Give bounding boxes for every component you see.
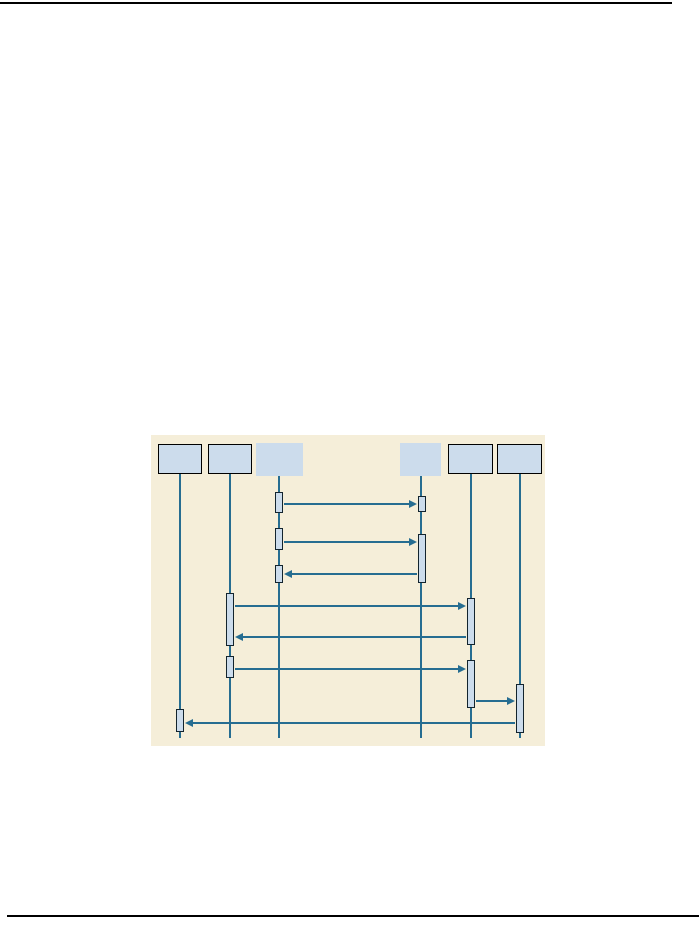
actor-2-box (208, 444, 252, 474)
activation-bar-lifeline-4 (418, 496, 426, 512)
message-arrow-line-1 (284, 503, 410, 505)
message-arrowhead-7 (507, 697, 515, 705)
bottom-rule (7, 915, 699, 917)
activation-bar-lifeline-2 (226, 656, 234, 678)
message-arrowhead-3 (284, 570, 292, 578)
message-arrowhead-1 (409, 500, 417, 508)
actor-5-box (448, 444, 493, 474)
activation-bar-lifeline-3 (275, 492, 283, 513)
actor-6-box (497, 444, 542, 474)
message-arrowhead-8 (185, 719, 193, 727)
message-arrow-line-8 (192, 722, 515, 724)
activation-bar-lifeline-1 (176, 709, 184, 732)
actor-1-box (158, 444, 202, 474)
lifeline-actor-4 (420, 476, 422, 738)
activation-bar-lifeline-5 (467, 598, 475, 645)
message-arrow-line-4 (235, 605, 459, 607)
activation-bar-lifeline-2 (226, 593, 234, 646)
message-arrowhead-2 (409, 538, 417, 546)
message-arrow-line-7 (476, 700, 508, 702)
message-arrow-line-6 (235, 668, 459, 670)
message-arrowhead-6 (458, 665, 466, 673)
activation-bar-lifeline-6 (516, 684, 524, 733)
activation-bar-lifeline-4 (418, 534, 426, 583)
message-arrow-line-3 (291, 573, 417, 575)
activation-bar-lifeline-5 (467, 660, 475, 708)
activation-bar-lifeline-3 (275, 528, 283, 550)
message-arrowhead-5 (235, 633, 243, 641)
activation-bar-lifeline-3 (275, 565, 283, 583)
top-rule (0, 2, 672, 4)
message-arrow-line-2 (284, 541, 410, 543)
lifeline-actor-3 (278, 476, 280, 738)
lifeline-actor-1 (179, 474, 181, 738)
message-arrow-line-5 (242, 636, 466, 638)
document-page (0, 0, 699, 926)
message-arrowhead-4 (458, 602, 466, 610)
actor-3-box (256, 443, 303, 476)
actor-4-box (400, 443, 441, 476)
